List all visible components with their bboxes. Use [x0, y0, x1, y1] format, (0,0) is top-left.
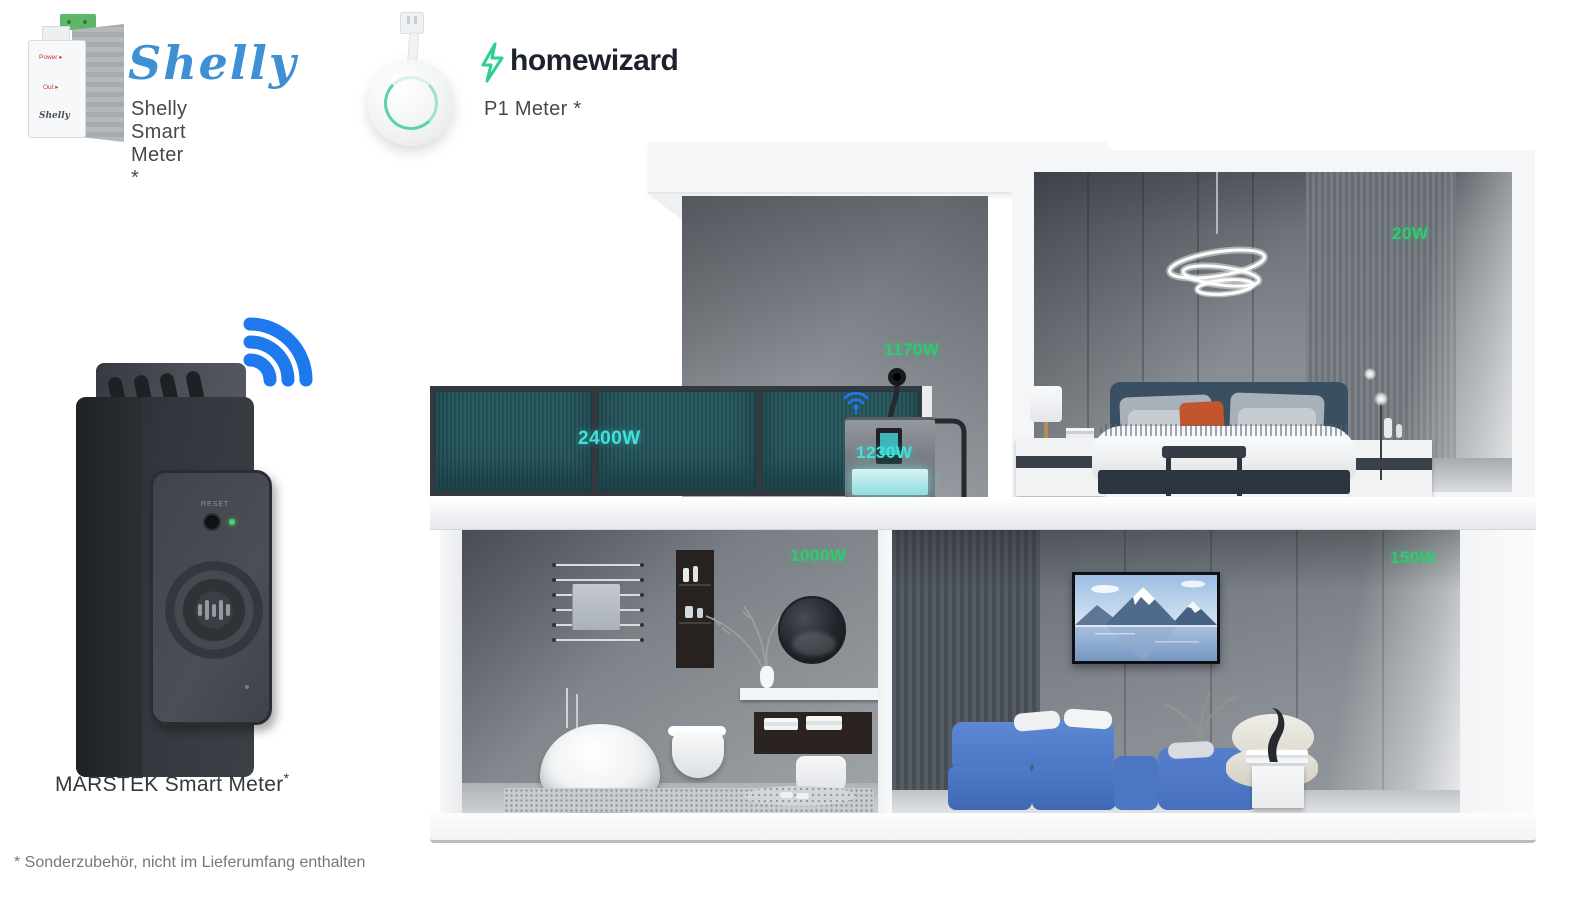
livingroom-interior [892, 530, 1460, 815]
bathroom-power-label: 1000W [790, 546, 846, 566]
bathroom-interior [462, 530, 880, 815]
battery-wifi-icon [842, 386, 870, 414]
room-divider-wall [878, 530, 892, 815]
sofa-chaise-small [1114, 756, 1158, 810]
hanging-towel [572, 584, 620, 630]
shelf-bottle [693, 566, 698, 582]
plug-power-label: 1170W [884, 340, 939, 360]
battery-power-label: 1230W [856, 443, 912, 463]
shelf-bottle [683, 568, 689, 582]
decor-bottle [1384, 418, 1392, 438]
towel-rack [554, 564, 642, 644]
slipper [780, 792, 793, 798]
livingroom-plant [1158, 672, 1243, 744]
solar-panel [435, 391, 592, 491]
nightstand-right [1350, 440, 1432, 498]
ground-right-wall [1460, 530, 1534, 815]
round-mirror [778, 596, 846, 664]
sofa-silver-pillow [1168, 741, 1215, 759]
house-cutaway: 2400W 1170W 1230W [0, 0, 1580, 900]
mid-floor-slab [430, 497, 1536, 530]
vanity-counter [740, 688, 880, 700]
slipper [796, 793, 809, 799]
livingroom-power-label: 150W [1390, 548, 1436, 568]
decor-bottle [1396, 424, 1402, 438]
wall-light [1364, 368, 1376, 380]
tv-screen-mountain-scene [1075, 575, 1217, 661]
floor-lamp-stem [1380, 402, 1382, 480]
side-table [1252, 766, 1304, 808]
sofa-white-pillow [1063, 708, 1112, 729]
pendant-light [1165, 172, 1295, 302]
folded-towels [764, 718, 798, 730]
bed-base [1098, 470, 1350, 494]
solar-power-label: 2400W [578, 428, 641, 450]
folded-towels [806, 716, 842, 730]
battery-glow-strip [852, 469, 928, 495]
bed-bench-leg [1166, 458, 1171, 496]
sofa-seat [948, 766, 1032, 810]
nightstand-stripe [1016, 456, 1104, 468]
decor-sculpture [1258, 706, 1286, 764]
table-lamp-shade [1030, 386, 1062, 422]
nightstand-left [1016, 438, 1104, 496]
shelf-bottle [685, 606, 693, 618]
table-lamp-stem [1044, 422, 1048, 438]
books-stack [1066, 428, 1094, 438]
counter-vase [760, 666, 774, 688]
bed-bench-leg [1237, 458, 1242, 496]
bed-blanket-pattern [1100, 424, 1348, 436]
tv [1072, 572, 1220, 664]
tub-faucet [576, 694, 578, 728]
bedroom-power-label: 20W [1392, 224, 1428, 244]
vanity-cabinet [754, 712, 872, 754]
nightstand-stripe [1350, 458, 1432, 470]
ground-left-wall [440, 530, 462, 815]
house-base-slab [430, 813, 1536, 843]
wall-light [1374, 392, 1388, 406]
sofa-seat [1032, 764, 1116, 810]
bed-bench-top [1162, 446, 1246, 458]
tub-faucet [566, 688, 568, 728]
marketing-image: Power ▸ Out ▸ Shelly Shelly Shelly Smart… [0, 0, 1580, 900]
